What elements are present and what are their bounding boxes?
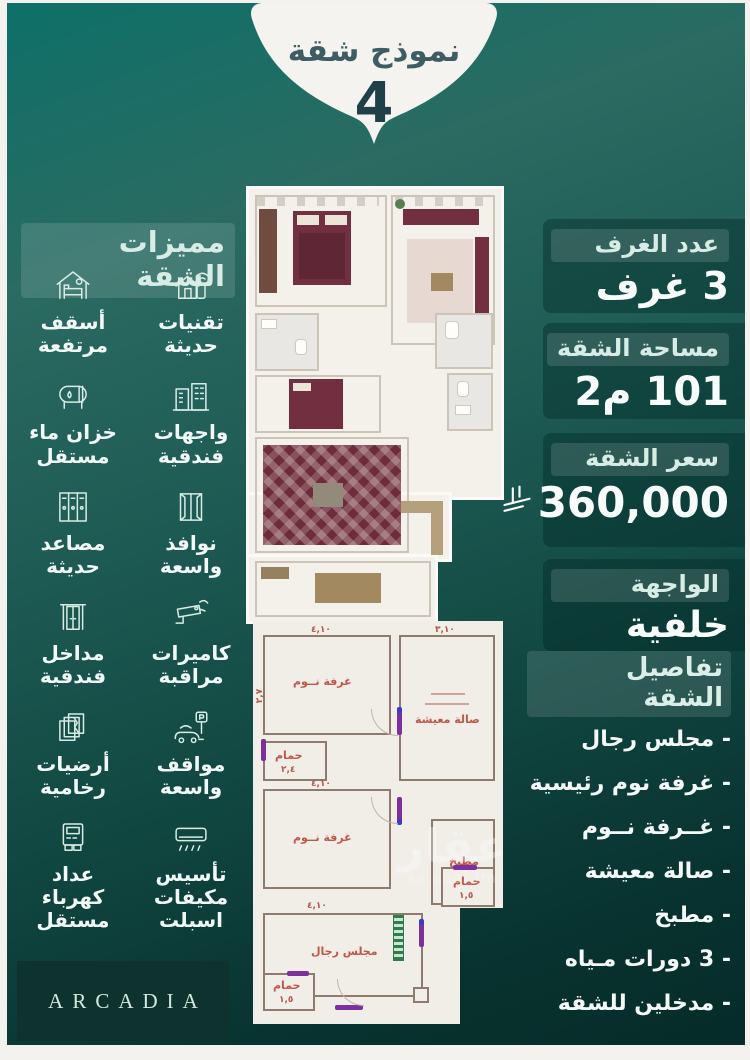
feature-label: تقنيات حديثة [158, 311, 224, 357]
elevator-icon [52, 486, 94, 528]
feature-label: كاميرات مراقبة [151, 642, 230, 688]
stat-area: مساحة الشقة 101 م2 [543, 323, 745, 419]
smart-home-icon [170, 265, 212, 307]
room-label-living: صالة معيشة [415, 713, 480, 726]
bathroom-render [447, 373, 493, 431]
pillow [297, 215, 319, 225]
dimension: ٢,٧ [255, 689, 265, 703]
apartment-flyer: نموذج شقة 4 مميزات الشقة تقنيات حديثة أس… [0, 0, 750, 1060]
stat-facade-label: الواجهة [551, 569, 729, 602]
details-item: - غــرفة نــوم [527, 815, 731, 859]
feature-label: واجهات فندقية [154, 421, 229, 467]
feature-cctv: كاميرات مراقبة [138, 596, 244, 688]
floor-plan-3d-image [249, 189, 501, 621]
entrance-icon [52, 596, 94, 638]
feature-label: عداد كهرباء مستقل [36, 863, 109, 933]
feature-electricity-meter: عداد كهرباء مستقل [20, 817, 126, 933]
sink [261, 319, 277, 329]
brand-box: ARCADIA [17, 961, 229, 1041]
sofa [403, 209, 479, 225]
bathroom-render [435, 313, 493, 369]
door-marker [335, 1005, 363, 1010]
sink [455, 405, 471, 415]
blanket [299, 233, 345, 279]
parking-icon [170, 707, 212, 749]
watermark-site: sa.aqar.fm [367, 869, 537, 887]
stat-facade-value: خلفية [543, 604, 729, 647]
details-item: - مطبخ [527, 903, 731, 947]
hotel-building-icon [170, 375, 212, 417]
dimension: ٤,١٠ [311, 779, 331, 789]
water-tank-icon [52, 375, 94, 417]
window-marker [393, 915, 404, 961]
watermark-name: عقار [367, 823, 537, 869]
brand-logo: ARCADIA [39, 989, 207, 1014]
pillow [293, 383, 311, 391]
feature-modern-tech: تقنيات حديثة [138, 265, 244, 357]
watermark: عقار sa.aqar.fm [367, 823, 537, 887]
dimension: ٢,٤ [281, 765, 295, 775]
stat-rooms-label: عدد الغرف [551, 229, 729, 262]
feature-label: أسقف مرتفعة [38, 311, 108, 357]
features-grid: تقنيات حديثة أسقف مرتفعة واجهات فندقية خ… [17, 265, 247, 932]
high-ceiling-icon [52, 265, 94, 307]
stat-rooms: عدد الغرف 3 غرف [543, 219, 745, 313]
feature-label: أرضيات رخامية [36, 753, 109, 799]
kitchen-counter [401, 501, 443, 513]
feature-label: مواقف واسعة [157, 753, 226, 799]
stat-price-label: سعر الشقة [551, 443, 729, 476]
badge-number: 4 [243, 71, 505, 136]
feature-split-ac: تأسيس مكيفات اسبلت [138, 817, 244, 933]
cctv-icon [170, 596, 212, 638]
kitchen-counter [431, 513, 443, 555]
feature-high-ceilings: أسقف مرتفعة [20, 265, 126, 357]
model-badge: نموذج شقة 4 [243, 3, 505, 155]
feature-water-tank: خزان ماء مستقل [20, 375, 126, 467]
sideboard [261, 567, 289, 579]
sketch-scribble [425, 703, 469, 705]
feature-label: تأسيس مكيفات اسبلت [154, 863, 228, 933]
dining-table [315, 573, 381, 603]
toilet [457, 381, 469, 397]
flyer-canvas: نموذج شقة 4 مميزات الشقة تقنيات حديثة أس… [7, 3, 745, 1045]
room-label-bath-bottom: حمام [273, 979, 301, 992]
window-icon [170, 486, 212, 528]
stat-facade: الواجهة خلفية [543, 559, 745, 651]
room-label-bath-mid: حمام [275, 749, 303, 762]
details-item: - مجلس رجال [527, 727, 731, 771]
saudi-riyal-symbol [502, 484, 532, 520]
stat-price: سعر الشقة 360,000 [543, 433, 745, 547]
details-item: - مدخلين للشقة [527, 991, 731, 1035]
feature-label: خزان ماء مستقل [29, 421, 117, 467]
meter-icon [52, 817, 94, 859]
dimension: ٤,١٠ [307, 901, 327, 911]
stat-area-label: مساحة الشقة [547, 333, 729, 366]
plant [395, 199, 405, 209]
feature-label: نوافذ واسعة [160, 532, 222, 578]
marble-icon [52, 707, 94, 749]
sketch-scribble [431, 693, 465, 695]
toilet [295, 339, 307, 355]
dimension: ٤,١٠ [311, 625, 331, 635]
dimension: ١,٥ [459, 891, 473, 901]
badge-title: نموذج شقة [243, 33, 505, 69]
door-marker [261, 739, 266, 761]
details-item: - صالة معيشة [527, 859, 731, 903]
entrance-step [413, 987, 429, 1003]
sofa [475, 237, 489, 313]
majlis-table [313, 483, 343, 507]
feature-hotel-entrances: مداخل فندقية [20, 596, 126, 688]
feature-wide-windows: نوافذ واسعة [138, 486, 244, 578]
apartment-details: تفاصيل الشقة - مجلس رجال - غرفة نوم رئيس… [527, 651, 745, 1035]
coffee-table [431, 273, 453, 291]
dimension: ١,٥ [279, 995, 293, 1005]
room-label-bedroom-bottom: غرفة نــوم [293, 831, 352, 844]
details-list: - مجلس رجال - غرفة نوم رئيسية - غــرفة ن… [527, 727, 731, 1035]
room-label-bedroom-top: غرفة نــوم [293, 675, 352, 688]
room-label-majlis: مجلس رجال [311, 945, 378, 958]
feature-marble-floors: أرضيات رخامية [20, 707, 126, 799]
door-marker-tip [419, 919, 424, 925]
pillow [325, 215, 347, 225]
feature-label: مداخل فندقية [40, 642, 106, 688]
details-item: - غرفة نوم رئيسية [527, 771, 731, 815]
wardrobe [259, 209, 277, 293]
details-item: - 3 دورات مـياه [527, 947, 731, 991]
feature-wide-parking: مواقف واسعة [138, 707, 244, 799]
stat-rooms-value: 3 غرف [543, 264, 729, 310]
dimension: ٣,١٠ [435, 625, 455, 635]
feature-hotel-facades: واجهات فندقية [138, 375, 244, 467]
ac-icon [170, 817, 212, 859]
stat-area-value: 101 م2 [543, 368, 729, 416]
feature-label: مصاعد حديثة [41, 532, 106, 578]
feature-modern-elevators: مصاعد حديثة [20, 486, 126, 578]
room-living [399, 635, 495, 781]
door-marker [287, 971, 309, 976]
details-title: تفاصيل الشقة [527, 651, 731, 717]
stat-price-value: 360,000 [538, 478, 729, 528]
toilet [445, 321, 459, 339]
